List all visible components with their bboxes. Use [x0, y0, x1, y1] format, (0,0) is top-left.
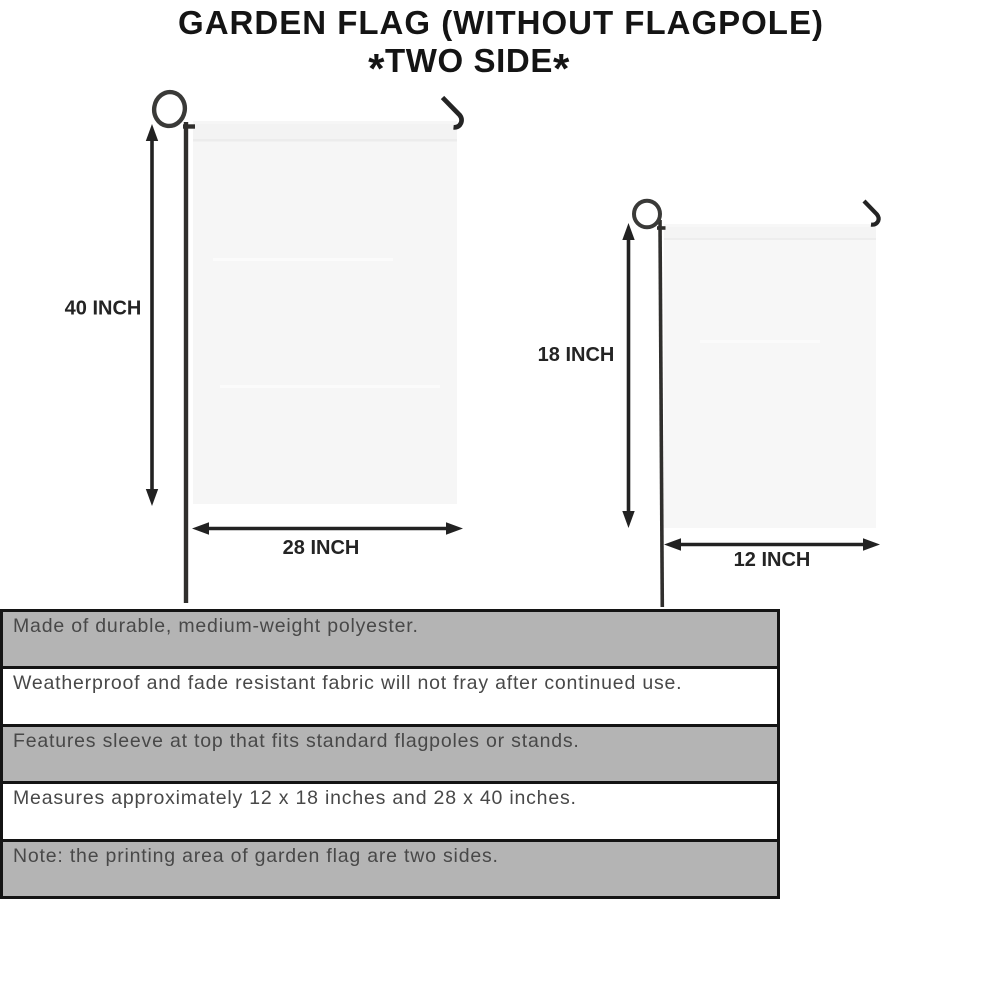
svg-text:18 INCH: 18 INCH: [538, 344, 615, 366]
svg-text:40 INCH: 40 INCH: [65, 298, 142, 320]
svg-text:GARDEN FLAG (WITHOUT FLAGPOLE): GARDEN FLAG (WITHOUT FLAGPOLE): [178, 4, 824, 41]
svg-text:28 INCH: 28 INCH: [283, 537, 360, 559]
svg-text:12 INCH: 12 INCH: [734, 549, 811, 571]
svg-text:*TWO SIDE*: *TWO SIDE*: [368, 42, 570, 92]
